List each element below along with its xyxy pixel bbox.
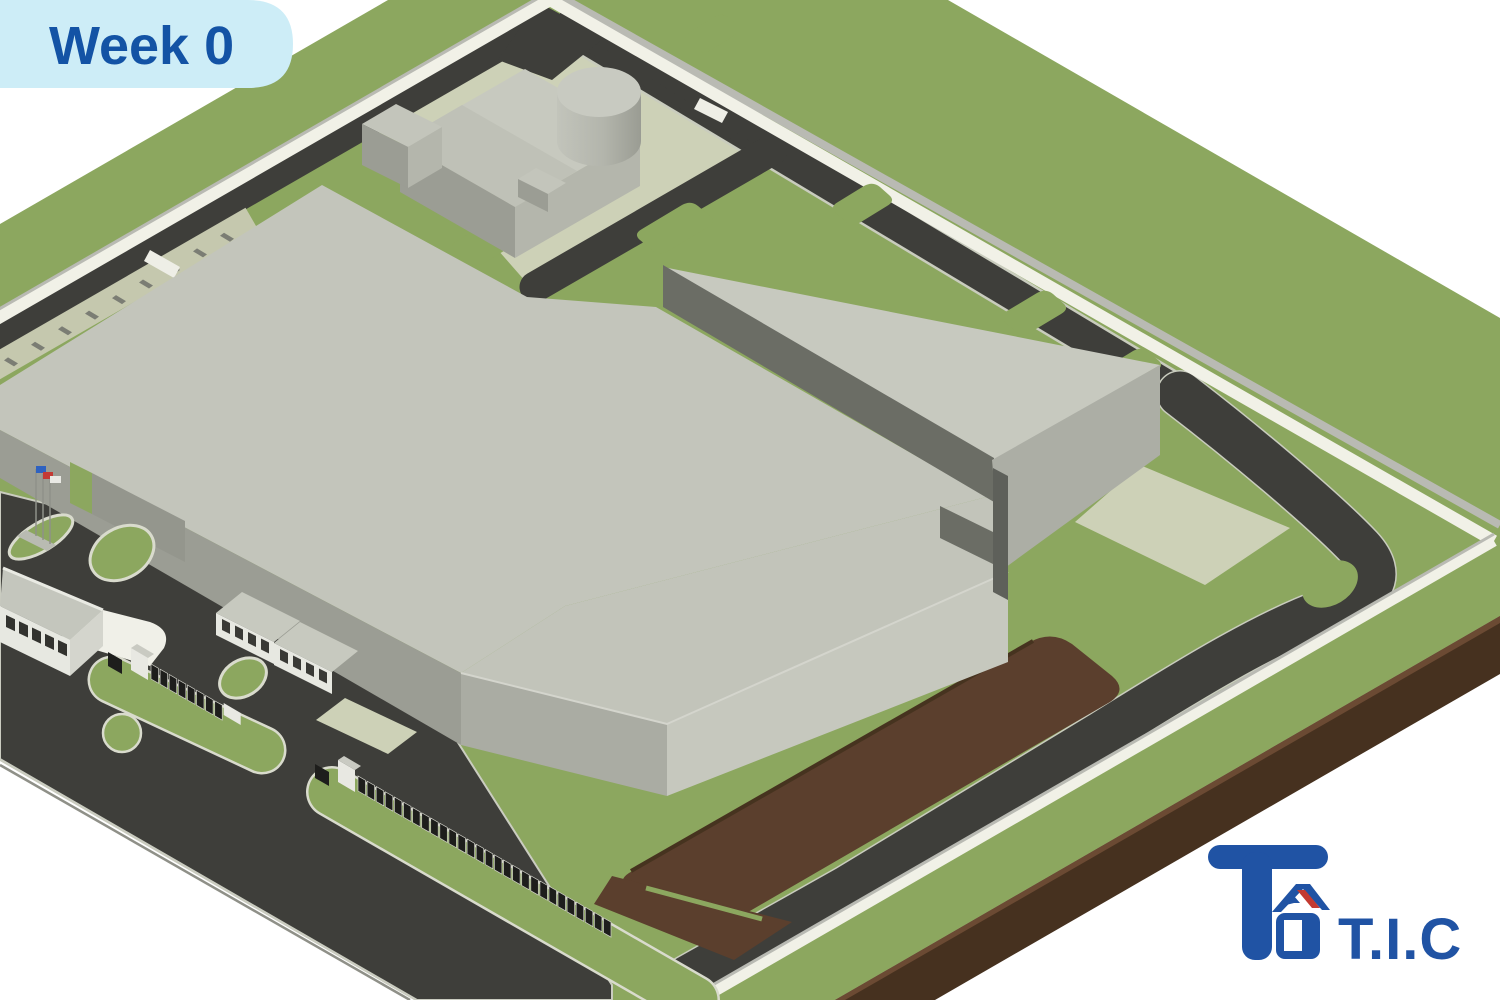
svg-text:T.I.C: T.I.C <box>1338 907 1462 972</box>
svg-text:Week 0: Week 0 <box>49 16 234 76</box>
